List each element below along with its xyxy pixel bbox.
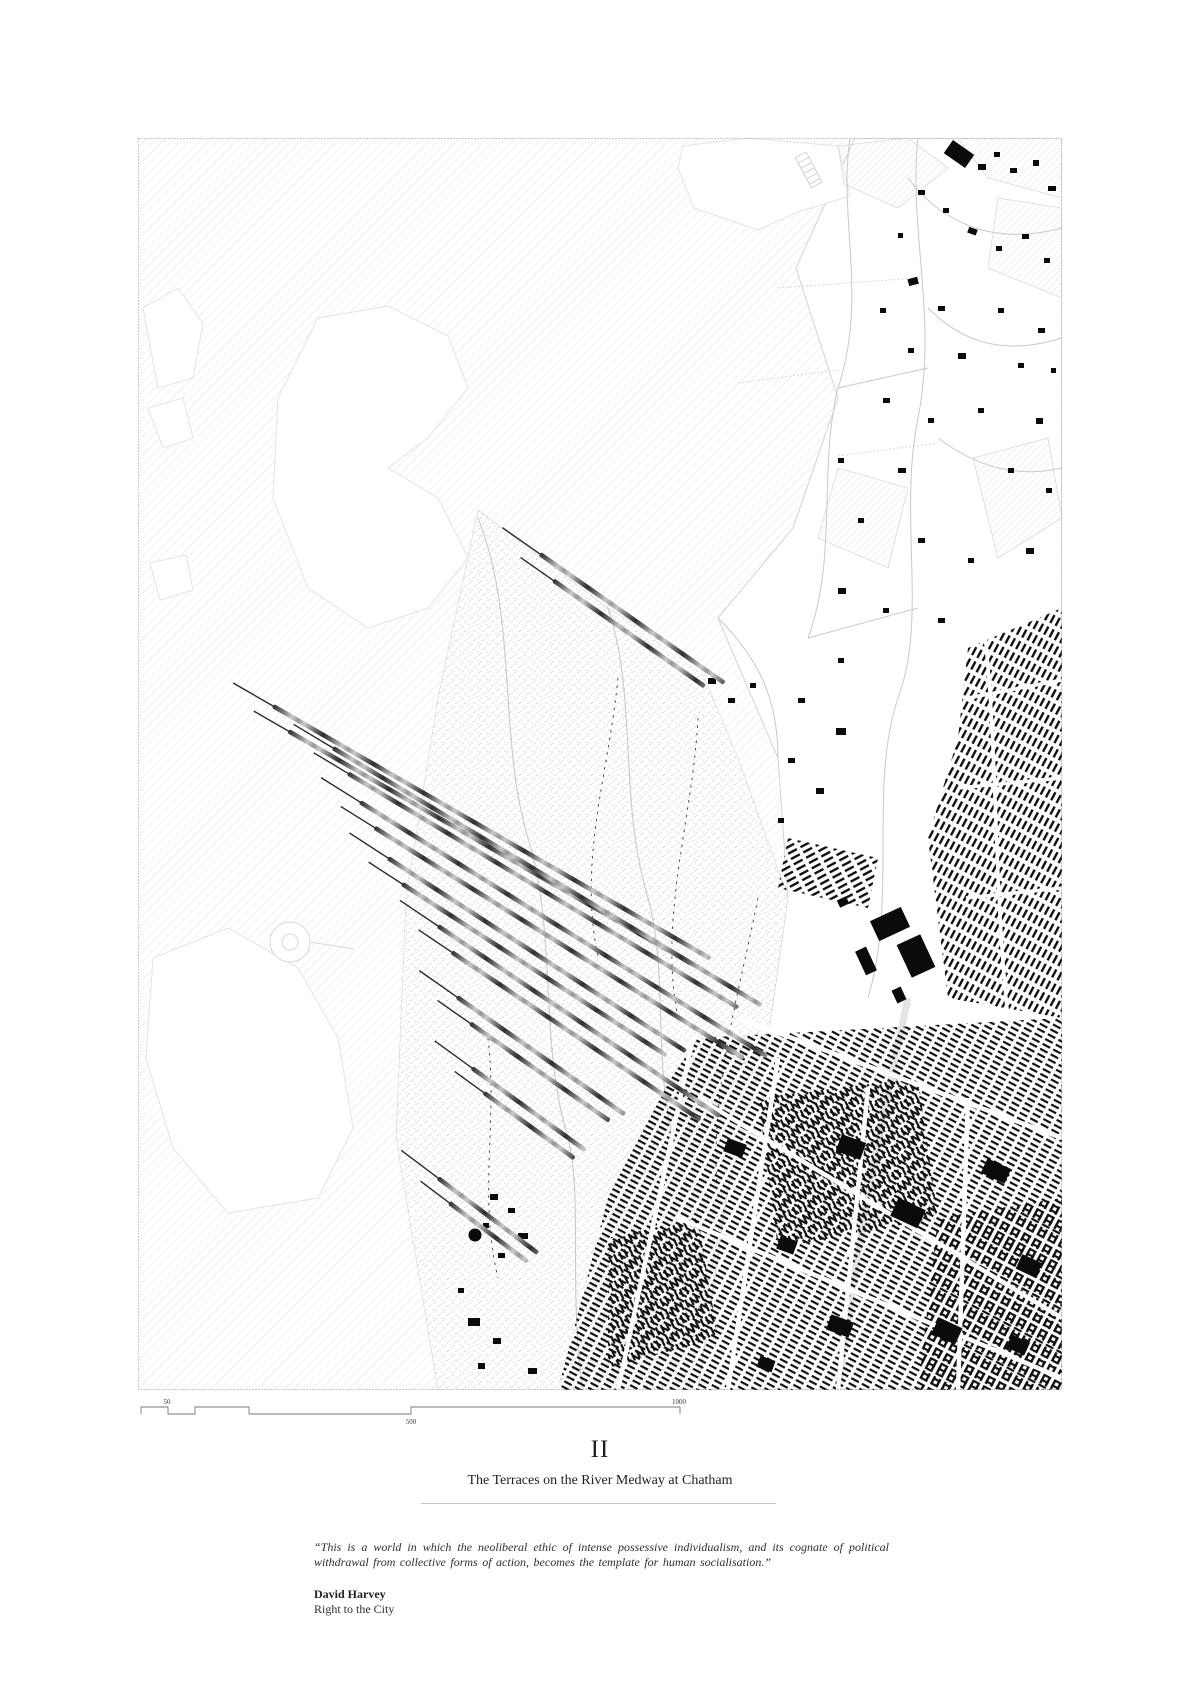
quote-source: Right to the City [314,1602,394,1617]
poster-page: 50 1000 500 II The Terraces on the River… [0,0,1200,1697]
plate-title: The Terraces on the River Medway at Chat… [0,1473,1200,1489]
scale-label-500: 500 [406,1418,417,1426]
scale-bar-line [141,1407,680,1414]
scale-label-1000: 1000 [672,1398,687,1406]
scale-bar: 50 1000 500 [130,1394,700,1428]
title-rule [421,1503,776,1504]
plate-number: II [0,1436,1200,1464]
map-figure [138,138,1062,1390]
scale-label-50: 50 [164,1398,172,1406]
quote-text: “This is a world in which the neoliberal… [314,1540,889,1569]
quote-author: David Harvey [314,1587,386,1602]
